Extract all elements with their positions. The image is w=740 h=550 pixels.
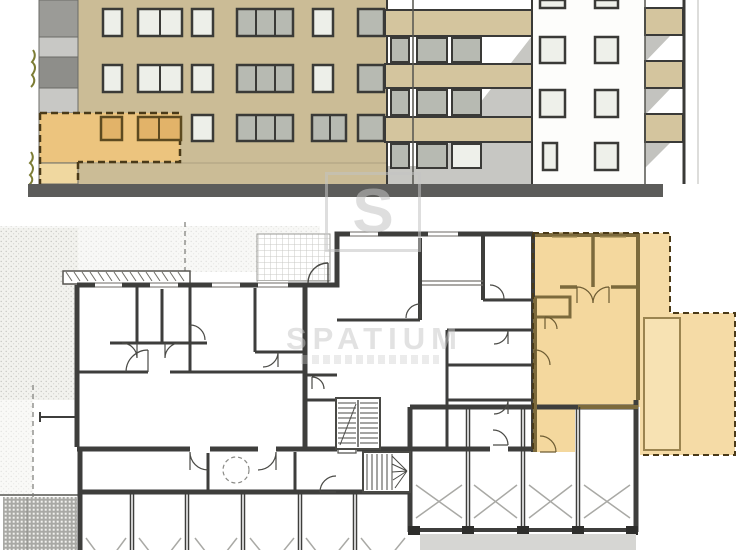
paved-area xyxy=(0,495,78,550)
watermark-logo: S xyxy=(325,172,421,252)
watermark-brand: SPATIUM xyxy=(286,321,463,357)
driveway-strip xyxy=(420,534,636,550)
turning-circle xyxy=(223,457,249,483)
watermark-logo-letter: S xyxy=(352,181,393,243)
unit-terrace-deck xyxy=(644,318,680,450)
right-balcony-column xyxy=(645,0,698,184)
highlighted-windows xyxy=(101,117,181,140)
architectural-drawing-sheet: S SPATIUM xyxy=(0,0,740,550)
plant-icon xyxy=(29,50,35,185)
floor-plan xyxy=(0,220,740,550)
balcony-slabs xyxy=(385,10,532,142)
watermark-tagline-illegible xyxy=(301,355,439,364)
rear-white-facade xyxy=(533,0,645,184)
staircase-lower xyxy=(363,452,410,492)
garage-parking-stalls-left xyxy=(86,492,405,550)
staircase-main xyxy=(336,398,380,449)
